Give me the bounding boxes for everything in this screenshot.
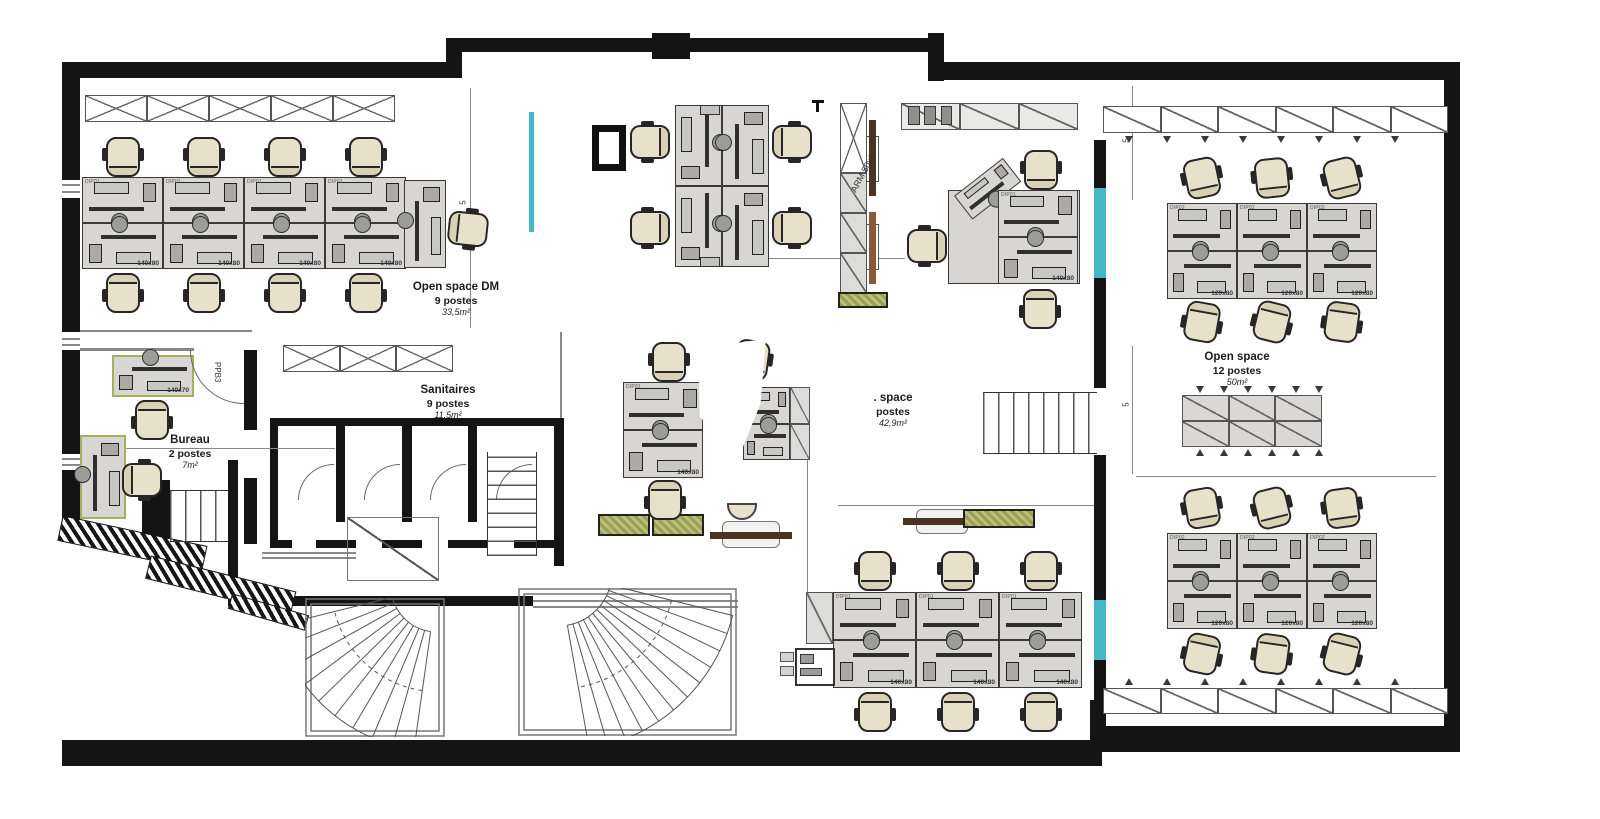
desk-tag: DIP01 xyxy=(328,179,343,185)
shaft xyxy=(592,125,626,171)
printer xyxy=(908,106,920,125)
cable-port xyxy=(1029,633,1046,650)
chair-back xyxy=(1329,515,1358,528)
wall xyxy=(62,740,1102,766)
chair-back xyxy=(659,214,668,242)
dimension-line xyxy=(1132,346,1133,474)
desk-equipment xyxy=(752,139,764,174)
wall xyxy=(62,62,80,180)
cable-port xyxy=(715,215,732,232)
wall xyxy=(938,62,1460,80)
desk-equipment xyxy=(778,392,786,407)
desk: 140x80 xyxy=(163,223,244,269)
triangle-chair-mark xyxy=(1196,386,1204,393)
desk-tag: DIP02 xyxy=(1240,535,1255,541)
desk-equipment xyxy=(1290,210,1302,229)
triangle-chair-mark xyxy=(1239,678,1247,685)
room-capacity: 2 postes xyxy=(169,448,212,461)
office-chair xyxy=(772,125,812,159)
copier-part xyxy=(800,654,814,664)
desk-equipment xyxy=(993,164,1008,180)
survey-mark xyxy=(816,100,819,112)
desk-tag: DIP01 xyxy=(919,594,934,600)
office-chair xyxy=(1251,298,1294,345)
chair-back xyxy=(774,214,783,242)
desk-equipment xyxy=(1313,273,1325,292)
storage-cabinet xyxy=(806,592,833,644)
desk-equipment xyxy=(1173,234,1221,238)
desk-equipment xyxy=(1058,196,1071,215)
acoustic-panel xyxy=(869,212,876,284)
desk-equipment xyxy=(705,112,709,167)
window-glazing xyxy=(529,112,534,232)
desk: 140x80 xyxy=(916,640,999,688)
office-chair xyxy=(349,137,383,177)
dimension-line xyxy=(80,348,194,351)
desk: 120x80 xyxy=(1237,251,1307,299)
meeting-table-cell xyxy=(1182,421,1229,447)
cable-port xyxy=(1192,574,1209,591)
desk-size-label: 140x80 xyxy=(380,260,402,267)
desk-equipment xyxy=(1313,564,1361,568)
wall xyxy=(1094,140,1106,188)
printer xyxy=(924,106,936,125)
triangle-chair-mark xyxy=(1201,136,1209,143)
room-name: Sanitaires xyxy=(421,384,476,398)
desk-equipment xyxy=(1313,603,1325,622)
chair-back xyxy=(944,694,972,703)
room-name: Open space DM xyxy=(413,281,499,295)
cable-port xyxy=(1332,244,1349,261)
desk-equipment xyxy=(1004,220,1059,224)
desk-size-label: 120x80 xyxy=(1351,290,1373,297)
desk-equipment xyxy=(1006,623,1063,627)
wall xyxy=(448,540,488,548)
cable-port xyxy=(142,349,159,366)
room-name: Bureau xyxy=(169,434,212,448)
room-label-bureau: Bureau 2 postes 7m² xyxy=(169,434,212,471)
storage-cabinet xyxy=(271,95,333,122)
window-glazing xyxy=(62,338,80,340)
desk-equipment xyxy=(936,653,993,657)
chair-back xyxy=(1190,184,1219,199)
office-chair xyxy=(1321,630,1364,677)
window-glazing xyxy=(1094,600,1106,660)
chair-back xyxy=(936,232,945,260)
door-arc xyxy=(364,464,400,500)
storage-cabinet xyxy=(209,95,271,122)
desk-size-label: 120x80 xyxy=(1281,620,1303,627)
desk-equipment xyxy=(629,413,684,417)
desk-equipment xyxy=(1220,210,1232,229)
desk: 140x80 xyxy=(998,237,1078,284)
room-label-open-space-dm: Open space DM 9 postes 33,5m² xyxy=(413,281,499,318)
dimension-line xyxy=(1132,86,1133,200)
cable-port xyxy=(715,134,732,151)
desk-equipment xyxy=(1324,594,1372,598)
desk-equipment xyxy=(1360,210,1372,229)
counter-table xyxy=(1391,106,1449,133)
desk-size-label: 140x80 xyxy=(137,260,159,267)
desk-equipment xyxy=(1254,594,1302,598)
curved-staircase xyxy=(518,588,737,736)
desk-equipment xyxy=(119,375,132,391)
wall xyxy=(1094,278,1106,388)
dimension-line xyxy=(262,552,356,554)
office-chair xyxy=(858,551,892,591)
desk-equipment xyxy=(251,207,306,211)
room-area: 11,5m² xyxy=(421,410,476,421)
desk-equipment xyxy=(415,201,419,261)
dimension-line xyxy=(755,258,905,259)
wall xyxy=(652,33,690,59)
office-chair xyxy=(1024,692,1058,732)
desk-equipment xyxy=(744,112,763,125)
desk-equipment xyxy=(143,183,156,201)
office-chair xyxy=(630,211,670,245)
chair-back xyxy=(271,275,299,284)
wall xyxy=(65,62,457,78)
cable-port xyxy=(652,423,669,440)
copier-part xyxy=(800,668,822,676)
chair-back xyxy=(1027,179,1055,188)
triangle-chair-mark xyxy=(1292,449,1300,456)
office-chair xyxy=(1182,299,1222,344)
desk-equipment xyxy=(763,447,783,456)
desk-equipment xyxy=(840,662,854,681)
chair-back xyxy=(655,371,683,380)
chair-back xyxy=(1027,694,1055,703)
storage-cabinet xyxy=(790,387,810,424)
dimension-line xyxy=(262,557,356,559)
desk-shelf xyxy=(700,257,720,267)
desk-equipment xyxy=(1290,540,1302,559)
planter xyxy=(598,514,650,536)
wall xyxy=(62,350,80,454)
desk-equipment xyxy=(182,235,237,239)
room-area: 7m² xyxy=(169,460,212,471)
desk-equipment xyxy=(1360,540,1372,559)
desk: 120x80 xyxy=(1307,251,1377,299)
desk-size-label: 120x80 xyxy=(1281,290,1303,297)
chair-back xyxy=(861,580,889,589)
desk-tag: DIP01 xyxy=(1002,594,1017,600)
dimension-value: 5 xyxy=(1122,138,1131,142)
chair-back xyxy=(1331,633,1360,649)
desk-equipment xyxy=(1062,599,1076,618)
office-chair xyxy=(268,137,302,177)
triangle-chair-mark xyxy=(1315,678,1323,685)
desk xyxy=(404,180,446,268)
chair-back xyxy=(352,166,380,175)
desk-tag: DIP01 xyxy=(166,179,181,185)
office-chair xyxy=(106,273,140,313)
office-chair xyxy=(1024,150,1058,190)
dimension-line xyxy=(838,505,1094,506)
desk: 140x80 xyxy=(833,640,916,688)
triangle-chair-mark xyxy=(1268,449,1276,456)
triangle-chair-mark xyxy=(1163,678,1171,685)
room-area: 50m² xyxy=(1204,377,1269,388)
desk-tag: DIP02 xyxy=(1240,205,1255,211)
chair-back xyxy=(659,128,668,156)
desk-equipment xyxy=(224,183,237,201)
desk: 140x80 xyxy=(244,223,325,269)
floor-plan: Open space DM 9 postes 33,5m² Sanitaires… xyxy=(0,0,1600,819)
meeting-table-cell xyxy=(1229,421,1276,447)
chair-back xyxy=(1261,513,1290,529)
window-glazing xyxy=(1094,188,1106,278)
desk-equipment xyxy=(170,207,225,211)
office-chair xyxy=(1181,155,1223,201)
office-chair xyxy=(1252,632,1291,676)
counter-table xyxy=(1103,106,1161,133)
triangle-chair-mark xyxy=(1315,449,1323,456)
office-chair xyxy=(858,692,892,732)
desk-equipment xyxy=(1173,564,1221,568)
desk-equipment xyxy=(1324,264,1372,268)
desk: 120x80 xyxy=(1167,251,1237,299)
office-chair xyxy=(446,210,489,248)
desk-equipment xyxy=(1173,273,1185,292)
wall xyxy=(468,426,477,522)
dimension-value: 5 xyxy=(459,200,468,204)
storage-cabinet xyxy=(840,213,867,253)
desk-equipment xyxy=(735,124,739,179)
cable-port xyxy=(273,216,290,233)
dimension-line xyxy=(807,452,808,600)
desk-equipment xyxy=(1243,564,1291,568)
storage-cabinet xyxy=(147,95,209,122)
wall xyxy=(336,426,345,522)
triangle-chair-mark xyxy=(1163,136,1171,143)
chair-back xyxy=(1259,634,1288,647)
wall xyxy=(1096,726,1460,752)
room-capacity: 9 postes xyxy=(421,398,476,411)
chair-back xyxy=(109,275,137,284)
counter-table xyxy=(1276,106,1334,133)
wall xyxy=(270,418,278,548)
desk: 120x80 xyxy=(1307,581,1377,629)
window-glazing xyxy=(62,191,80,193)
desk-equipment xyxy=(979,599,993,618)
chair-back xyxy=(944,580,972,589)
triangle-chair-mark xyxy=(1315,386,1323,393)
cable-port xyxy=(74,466,91,483)
staircase xyxy=(983,392,1097,454)
chair-back xyxy=(190,166,218,175)
meeting-table-cell xyxy=(1275,421,1322,447)
room-capacity: 9 postes xyxy=(413,295,499,308)
meeting-table-cell xyxy=(1229,395,1276,421)
triangle-chair-mark xyxy=(1353,678,1361,685)
counter-table xyxy=(1391,688,1449,714)
cable-port xyxy=(1332,574,1349,591)
office-chair xyxy=(648,480,682,520)
desk-equipment xyxy=(896,599,910,618)
desk xyxy=(722,105,769,186)
planter xyxy=(838,292,888,308)
chair-back xyxy=(1190,633,1219,648)
chair-back xyxy=(138,402,166,411)
desk-equipment xyxy=(752,220,764,255)
chair-back xyxy=(1329,302,1358,315)
chair-back xyxy=(1331,183,1360,199)
desk-size-label: 140x80 xyxy=(973,679,995,686)
cable-port xyxy=(354,216,371,233)
desk-equipment xyxy=(840,623,897,627)
triangle-chair-mark xyxy=(1315,136,1323,143)
triangle-chair-mark xyxy=(1125,678,1133,685)
office-chair xyxy=(1023,289,1057,329)
desk-equipment xyxy=(386,183,399,201)
desk-equipment xyxy=(132,367,187,371)
desk-equipment xyxy=(93,455,97,511)
chair-back xyxy=(190,275,218,284)
chair-back xyxy=(1027,580,1055,589)
desk-equipment xyxy=(101,235,156,239)
desk-tag: DIP01 xyxy=(247,179,262,185)
room-capacity: postes xyxy=(874,406,913,419)
room-area: 42,9m² xyxy=(874,418,913,429)
office-chair xyxy=(772,211,812,245)
chair-back xyxy=(774,128,783,156)
cable-port xyxy=(111,216,128,233)
desk-equipment xyxy=(1184,594,1232,598)
desk-equipment xyxy=(1313,234,1361,238)
wall xyxy=(244,478,257,544)
desk-size-label: 140x80 xyxy=(218,260,240,267)
meeting-table-cell xyxy=(1275,395,1322,421)
desk-equipment xyxy=(263,235,318,239)
triangle-chair-mark xyxy=(1201,678,1209,685)
desk: 120x80 xyxy=(1237,581,1307,629)
planter xyxy=(963,509,1035,528)
storage-cabinet xyxy=(283,345,340,372)
desk: 140x80 xyxy=(82,223,163,269)
desk-size-label: 120x80 xyxy=(1211,620,1233,627)
office-chair xyxy=(1322,300,1361,344)
desk-size-label: 140x80 xyxy=(1056,679,1078,686)
staircase xyxy=(347,517,439,581)
dimension-line xyxy=(560,332,562,418)
desk-equipment xyxy=(923,662,937,681)
room-area: 33,5m² xyxy=(413,307,499,318)
desk-equipment xyxy=(305,183,318,201)
room-name: Open space xyxy=(1204,351,1269,365)
office-chair xyxy=(268,273,302,313)
cable-port xyxy=(1027,230,1044,247)
desk xyxy=(80,435,126,519)
desk-equipment xyxy=(344,235,399,239)
room-label-open-space-right: Open space 12 postes 50m² xyxy=(1204,351,1269,388)
desk-tag: DIP02 xyxy=(1310,535,1325,541)
desk-tag: DIP01 xyxy=(836,594,851,600)
desk-equipment xyxy=(431,217,441,255)
desk-equipment xyxy=(923,623,980,627)
wall xyxy=(62,198,80,332)
desk-equipment xyxy=(683,389,696,408)
office-chair xyxy=(941,692,975,732)
desk-size-label: 120x80 xyxy=(1211,290,1233,297)
triangle-chair-mark xyxy=(1196,449,1204,456)
office-chair xyxy=(1321,154,1364,201)
chair-back xyxy=(449,213,461,242)
triangle-chair-mark xyxy=(1244,449,1252,456)
chair-back xyxy=(124,466,133,494)
desk-tag: DIP02 xyxy=(1310,205,1325,211)
desk-size-label: 120x80 xyxy=(1351,620,1373,627)
desk xyxy=(722,186,769,267)
desk-equipment xyxy=(744,193,763,206)
wall xyxy=(1094,455,1106,600)
cable-port xyxy=(946,633,963,650)
storage-cabinet xyxy=(396,345,453,372)
office-chair xyxy=(1253,156,1291,199)
office-chair xyxy=(1182,485,1222,530)
desk: 140x80 xyxy=(999,640,1082,688)
desk: 140x80 xyxy=(623,430,703,478)
window-glazing xyxy=(62,458,80,460)
storage-cabinet xyxy=(1019,103,1078,130)
counter-table xyxy=(1333,106,1391,133)
chair-back xyxy=(861,694,889,703)
desk-equipment xyxy=(332,207,387,211)
dimension-line xyxy=(80,330,252,332)
desk-equipment xyxy=(754,434,786,438)
room-label-sanitaires: Sanitaires 9 postes 11,5m² xyxy=(421,384,476,421)
cable-port xyxy=(863,633,880,650)
cable-port xyxy=(760,417,777,434)
triangle-chair-mark xyxy=(1353,136,1361,143)
desk-tag: DIP01 xyxy=(626,384,641,390)
triangle-chair-mark xyxy=(1239,136,1247,143)
desk-equipment xyxy=(1019,653,1076,657)
door-arc xyxy=(430,464,466,500)
copier-part xyxy=(780,652,794,662)
chair-back xyxy=(109,166,137,175)
office-chair xyxy=(187,273,221,313)
desk-equipment xyxy=(747,441,755,455)
office-chair xyxy=(135,400,169,440)
storage-cabinet xyxy=(960,103,1019,130)
desk-equipment xyxy=(681,247,700,260)
wall xyxy=(270,540,292,548)
desk-equipment xyxy=(1173,603,1185,622)
desk-equipment xyxy=(170,244,183,262)
storage-cabinet xyxy=(333,95,395,122)
wall xyxy=(270,418,562,426)
storage-cabinet xyxy=(840,253,867,293)
office-chair xyxy=(187,137,221,177)
desk-equipment xyxy=(1243,603,1255,622)
desk-equipment xyxy=(642,443,697,447)
desk-tag: DIP01 xyxy=(85,179,100,185)
window-glazing xyxy=(62,184,80,186)
door-arc xyxy=(298,464,334,500)
office-chair xyxy=(1024,551,1058,591)
triangle-chair-mark xyxy=(1220,449,1228,456)
counter-table xyxy=(1333,688,1391,714)
cable-port xyxy=(1262,244,1279,261)
chair-back xyxy=(1026,291,1054,300)
desk-equipment xyxy=(629,452,642,471)
wall xyxy=(402,426,412,522)
desk-equipment xyxy=(853,653,910,657)
desk-size-label: 140x70 xyxy=(167,387,189,394)
room-capacity: 12 postes xyxy=(1204,365,1269,378)
desk-equipment xyxy=(332,244,345,262)
